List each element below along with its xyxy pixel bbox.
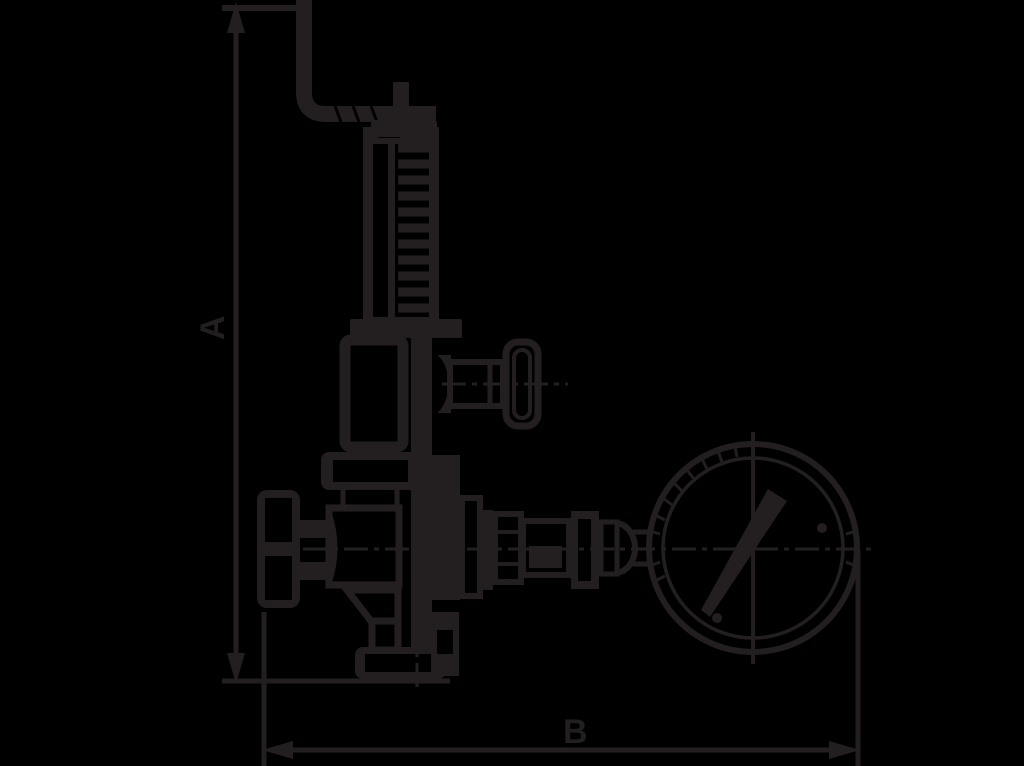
handwheel-window (265, 556, 292, 600)
body-cone (347, 590, 398, 621)
outlet-mass-step (462, 498, 480, 596)
spindle (388, 142, 395, 320)
bottom-flange-window (365, 654, 436, 672)
valve-technical-drawing: A (0, 0, 1024, 766)
gauge-screw-dot (712, 613, 722, 623)
handwheel-stem-bottom (298, 562, 328, 580)
test-knob-outlet (437, 342, 568, 426)
gauge-needle (701, 489, 787, 617)
dimension-b-label: B (563, 713, 588, 751)
dimension-b-arrow-right-icon (829, 741, 860, 759)
upper-body-block (345, 340, 403, 447)
lever-handle (304, 6, 428, 122)
drain-window (437, 630, 453, 654)
packing-flange-window (333, 460, 408, 482)
handwheel-stem-top (298, 520, 328, 538)
handwheel-window (265, 498, 292, 542)
body-block (329, 508, 399, 585)
spring-bonnet (350, 120, 462, 338)
gauge-screw-dot (817, 523, 827, 533)
stem-column (411, 333, 432, 653)
lever-bar (304, 6, 428, 114)
dimension-b-arrow-left-icon (262, 741, 293, 759)
spring-coils (398, 148, 429, 308)
stem-top-tab (393, 82, 409, 112)
dimension-a-label: A (194, 315, 232, 340)
outlet-mass (432, 455, 460, 600)
body-neck (372, 621, 398, 650)
